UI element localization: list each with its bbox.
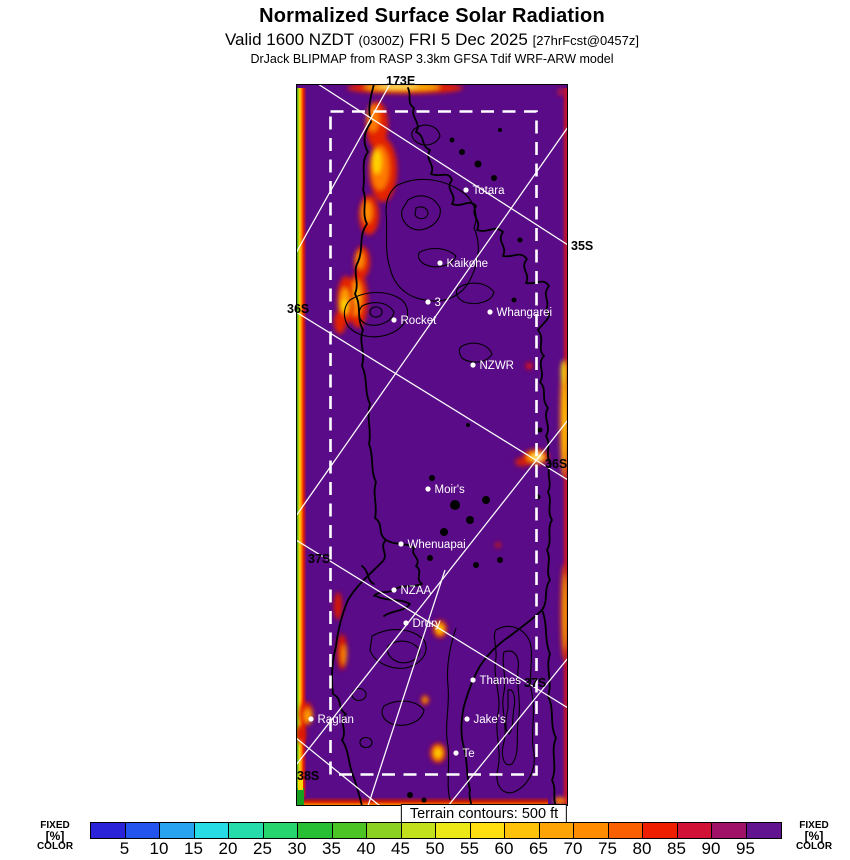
colorbar-tick-label: 25 bbox=[253, 839, 272, 859]
colorbar-segment bbox=[263, 823, 299, 838]
station-dot-icon bbox=[464, 716, 469, 721]
station-marker: Whenuapai bbox=[398, 539, 465, 551]
colorbar-segment bbox=[677, 823, 713, 838]
units-label-line: COLOR bbox=[27, 842, 83, 852]
colorbar-tick-label: 75 bbox=[598, 839, 617, 859]
units-label-line: [%] bbox=[27, 831, 83, 842]
colorbar bbox=[90, 822, 782, 839]
grid-label: 37S bbox=[308, 552, 330, 566]
colorbar-tick-label: 5 bbox=[120, 839, 129, 859]
station-label: Te bbox=[463, 748, 475, 760]
colorbar-tick-label: 60 bbox=[495, 839, 514, 859]
colorbar-tick-label: 65 bbox=[529, 839, 548, 859]
colorbar-tick-label: 70 bbox=[564, 839, 583, 859]
solar-radiation-map: 173E35S36S36S37S37S38S TotaraKaikohe3Roc… bbox=[0, 0, 850, 860]
colorbar-tick-label: 55 bbox=[460, 839, 479, 859]
station-marker: Whangarei bbox=[487, 307, 552, 319]
colorbar-tick-label: 80 bbox=[633, 839, 652, 859]
colorbar-segment bbox=[435, 823, 471, 838]
colorbar-tick-label: 45 bbox=[391, 839, 410, 859]
station-dot-icon bbox=[470, 677, 475, 682]
colorbar-segment bbox=[642, 823, 678, 838]
units-label-line: COLOR bbox=[786, 842, 842, 852]
station-label: NZWR bbox=[480, 360, 515, 372]
colorbar-segment bbox=[332, 823, 368, 838]
station-dot-icon bbox=[463, 187, 468, 192]
edge-gradient-left bbox=[297, 88, 307, 804]
station-dot-icon bbox=[308, 716, 313, 721]
colorbar-segment bbox=[573, 823, 609, 838]
units-label-line: [%] bbox=[786, 831, 842, 842]
station-label: Drury bbox=[413, 618, 441, 630]
station-dot-icon bbox=[487, 309, 492, 314]
colorbar-segment bbox=[91, 823, 126, 838]
station-dot-icon bbox=[403, 620, 408, 625]
grid-label: 35S bbox=[571, 239, 593, 253]
colorbar-tick-label: 10 bbox=[150, 839, 169, 859]
station-label: Kaikohe bbox=[447, 258, 489, 270]
colorbar-tick-label: 85 bbox=[667, 839, 686, 859]
station-label: Rocket bbox=[401, 315, 438, 327]
colorbar-tick-label: 40 bbox=[357, 839, 376, 859]
station-label: NZAA bbox=[401, 585, 432, 597]
colorbar-segment bbox=[401, 823, 437, 838]
colorbar-segment bbox=[366, 823, 402, 838]
colorbar-units-label-right: FIXED[%]COLOR bbox=[786, 821, 842, 851]
corner-green bbox=[296, 788, 304, 806]
grid-label: 36S bbox=[545, 457, 567, 471]
grid-label: 173E bbox=[386, 74, 415, 88]
colorbar-segment bbox=[470, 823, 506, 838]
station-label: Whenuapai bbox=[408, 539, 466, 551]
station-dot-icon bbox=[470, 362, 475, 367]
colorbar-segment bbox=[297, 823, 333, 838]
station-label: Thames bbox=[480, 675, 522, 687]
station-dot-icon bbox=[437, 260, 442, 265]
station-dot-icon bbox=[425, 486, 430, 491]
station-dot-icon bbox=[391, 317, 396, 322]
colorbar-segment bbox=[608, 823, 644, 838]
colorbar-tick-label: 15 bbox=[184, 839, 203, 859]
station-label: Jake's bbox=[474, 714, 506, 726]
colorbar-segment bbox=[539, 823, 575, 838]
colorbar-tick-label: 30 bbox=[288, 839, 307, 859]
colorbar-tick-label: 20 bbox=[219, 839, 238, 859]
station-label: Whangarei bbox=[497, 307, 553, 319]
station-dot-icon bbox=[453, 750, 458, 755]
colorbar-tick-label: 50 bbox=[426, 839, 445, 859]
station-label: Raglan bbox=[318, 714, 354, 726]
colorbar-segment bbox=[711, 823, 747, 838]
grid-label: 38S bbox=[297, 769, 319, 783]
grid-label: 37S bbox=[524, 676, 546, 690]
station-dot-icon bbox=[391, 587, 396, 592]
grid-label: 36S bbox=[287, 302, 309, 316]
station-label: 3 bbox=[435, 297, 441, 309]
colorbar-units-label-left: FIXED[%]COLOR bbox=[27, 821, 83, 851]
station-dot-icon bbox=[398, 541, 403, 546]
station-dot-icon bbox=[425, 299, 430, 304]
station-label: Totara bbox=[473, 185, 506, 197]
colorbar-segment bbox=[125, 823, 161, 838]
colorbar-tick-label: 35 bbox=[322, 839, 341, 859]
colorbar-segment bbox=[159, 823, 195, 838]
colorbar-segment bbox=[228, 823, 264, 838]
colorbar-segment bbox=[746, 823, 782, 838]
station-label: Moir's bbox=[435, 484, 466, 496]
colorbar-tick-label: 95 bbox=[736, 839, 755, 859]
blipmap-page: Normalized Surface Solar Radiation Valid… bbox=[0, 0, 850, 860]
colorbar-segment bbox=[504, 823, 540, 838]
colorbar-segment bbox=[194, 823, 230, 838]
colorbar-tick-label: 90 bbox=[702, 839, 721, 859]
